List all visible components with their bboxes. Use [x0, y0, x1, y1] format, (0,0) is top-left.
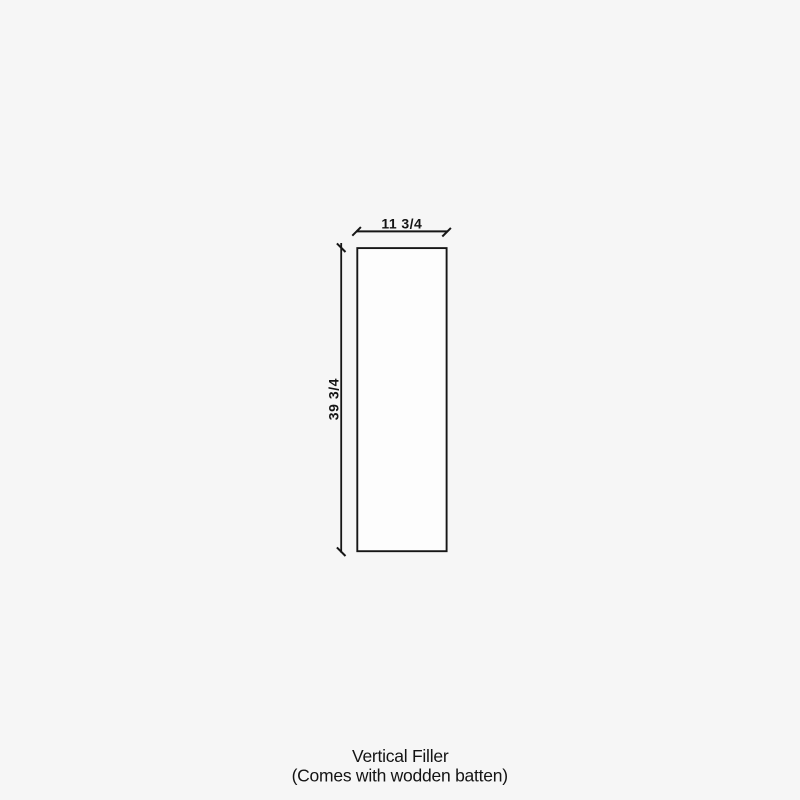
svg-text:39 3/4: 39 3/4 [326, 378, 342, 420]
svg-text:11 3/4: 11 3/4 [381, 216, 422, 232]
svg-text:Vertical Filler: Vertical Filler [352, 746, 449, 766]
svg-text:(Comes with wodden batten): (Comes with wodden batten) [292, 766, 508, 786]
